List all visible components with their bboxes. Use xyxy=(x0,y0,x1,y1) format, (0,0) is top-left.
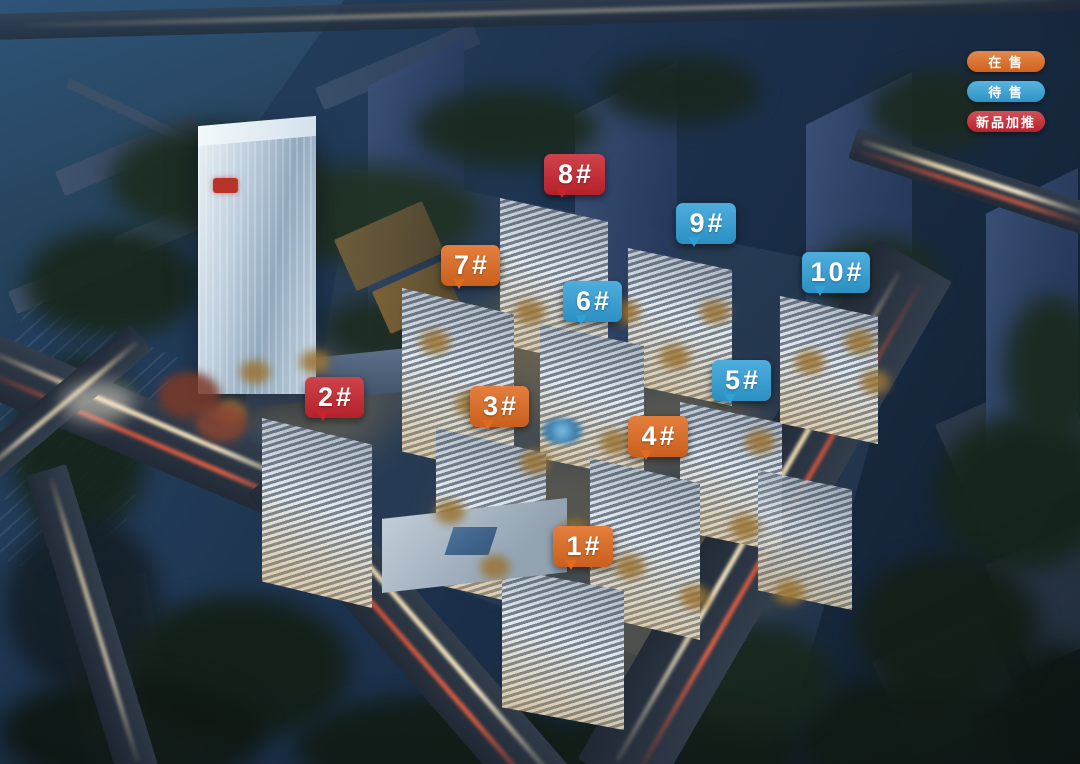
building-pin-8[interactable]: 8# xyxy=(544,154,605,195)
legend-item-new-launch: 新品加推 xyxy=(967,111,1045,132)
building-pin-5[interactable]: 5# xyxy=(712,360,771,401)
legend: 在 售待 售新品加推 xyxy=(967,51,1045,132)
building-pin-6[interactable]: 6# xyxy=(563,281,622,322)
building-pin-7[interactable]: 7# xyxy=(441,245,500,286)
aerial-night-render: 1#2#3#4#5#6#7#8#9#10# 在 售待 售新品加推 xyxy=(0,0,1080,764)
building-pin-4[interactable]: 4# xyxy=(628,416,688,457)
building-pin-10[interactable]: 10# xyxy=(802,252,870,293)
building-pin-9[interactable]: 9# xyxy=(676,203,736,244)
building-pin-2[interactable]: 2# xyxy=(305,377,364,418)
building-pin-3[interactable]: 3# xyxy=(470,386,529,427)
vignette xyxy=(0,0,1080,764)
legend-item-on-sale: 在 售 xyxy=(967,51,1045,72)
legend-item-pending-sale: 待 售 xyxy=(967,81,1045,102)
building-pin-1[interactable]: 1# xyxy=(553,526,613,567)
